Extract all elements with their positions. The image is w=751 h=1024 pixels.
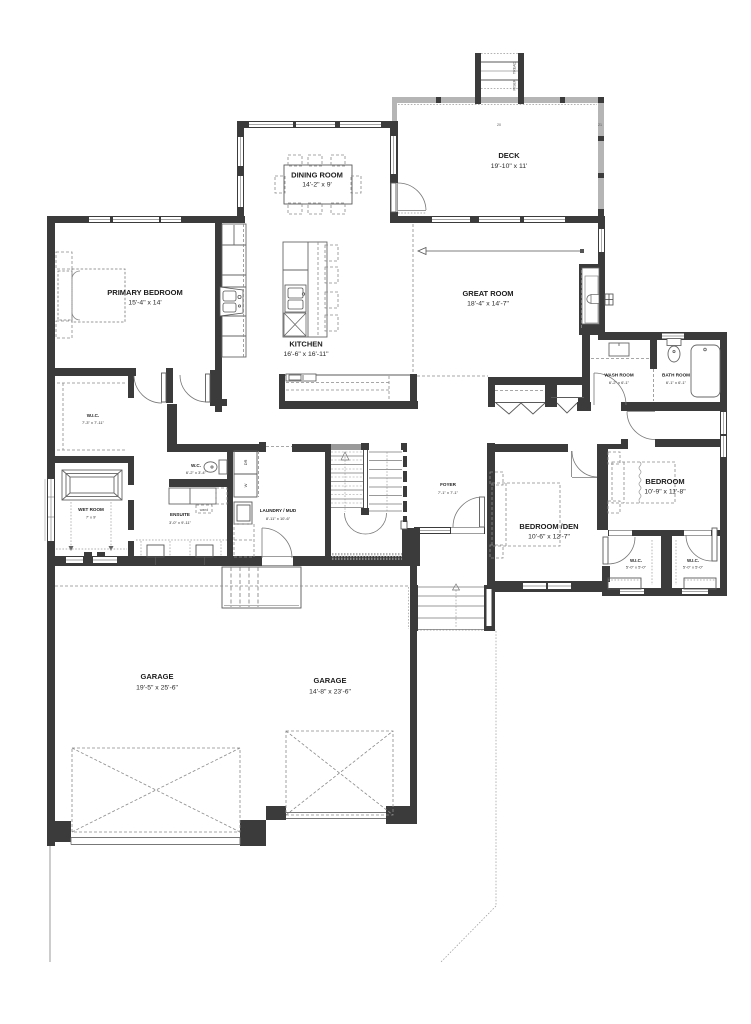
svg-text:DINING ROOM: DINING ROOM xyxy=(291,171,343,180)
svg-text:DECK: DECK xyxy=(498,151,520,160)
svg-text:14'-8" x 23'-6": 14'-8" x 23'-6" xyxy=(309,689,351,696)
svg-text:LAUNDRY / MUD: LAUNDRY / MUD xyxy=(260,508,297,513)
svg-text:BEDROOM: BEDROOM xyxy=(645,477,684,486)
svg-text:8'-11" x 10'-6": 8'-11" x 10'-6" xyxy=(266,516,291,521)
svg-text:14'-2" x 9': 14'-2" x 9' xyxy=(302,182,332,189)
svg-text:PRIMARY BEDROOM: PRIMARY BEDROOM xyxy=(107,288,182,297)
svg-text:BEDROOM /DEN: BEDROOM /DEN xyxy=(519,522,578,531)
svg-text:20: 20 xyxy=(497,123,501,127)
svg-text:W: W xyxy=(243,483,248,487)
svg-text:19'-5" x 25'-6": 19'-5" x 25'-6" xyxy=(136,685,178,692)
svg-text:KITCHEN: KITCHEN xyxy=(289,340,322,349)
svg-text:FOYER: FOYER xyxy=(440,482,457,487)
svg-text:16'-6" x 16'-11": 16'-6" x 16'-11" xyxy=(283,351,329,358)
svg-text:DR: DR xyxy=(243,460,248,466)
svg-text:7'-3" x 7'-11": 7'-3" x 7'-11" xyxy=(82,420,105,425)
svg-text:5'-0" x 5'-0": 5'-0" x 5'-0" xyxy=(626,565,647,570)
svg-text:7'-1" x 7'-1": 7'-1" x 7'-1" xyxy=(438,490,459,495)
svg-text:ENSUITE: ENSUITE xyxy=(170,512,190,517)
svg-text:GREAT ROOM: GREAT ROOM xyxy=(462,289,513,298)
svg-text:10'-9" x 11'-8": 10'-9" x 11'-8" xyxy=(644,489,686,496)
svg-text:3'-0" x 9'-11": 3'-0" x 9'-11" xyxy=(169,520,192,525)
svg-text:WET ROOM: WET ROOM xyxy=(78,507,104,512)
svg-text:W.I.C.: W.I.C. xyxy=(87,413,100,418)
svg-text:W.I.C.: W.I.C. xyxy=(630,558,642,563)
svg-text:GARAGE: GARAGE xyxy=(314,676,347,685)
svg-text:W.I.C.: W.I.C. xyxy=(687,558,699,563)
svg-text:WASH ROOM: WASH ROOM xyxy=(604,373,634,378)
svg-text:BATH ROOM: BATH ROOM xyxy=(662,373,690,378)
svg-text:GARAGE: GARAGE xyxy=(141,672,174,681)
svg-text:6'-2" x 6'-1": 6'-2" x 6'-1" xyxy=(609,380,630,385)
svg-text:19'-10" x 11': 19'-10" x 11' xyxy=(491,163,528,170)
svg-text:5'-0" x 5'-0": 5'-0" x 5'-0" xyxy=(683,565,704,570)
svg-text:RISER: RISER xyxy=(513,79,517,90)
svg-text:wand: wand xyxy=(200,508,209,512)
svg-text:6'-1" x 6'-1": 6'-1" x 6'-1" xyxy=(666,380,687,385)
svg-text:TREAD: TREAD xyxy=(513,62,517,75)
svg-text:7' x 9': 7' x 9' xyxy=(86,515,96,520)
svg-text:18'-4" x 14'-7": 18'-4" x 14'-7" xyxy=(467,301,509,308)
svg-text:15'-4" x 14': 15'-4" x 14' xyxy=(128,300,161,307)
svg-text:W.C.: W.C. xyxy=(191,463,201,468)
svg-text:10'-6" x 12'-7": 10'-6" x 12'-7" xyxy=(528,534,570,541)
svg-text:6'-2" x 3'-4": 6'-2" x 3'-4" xyxy=(186,470,207,475)
svg-text:21: 21 xyxy=(598,123,602,127)
